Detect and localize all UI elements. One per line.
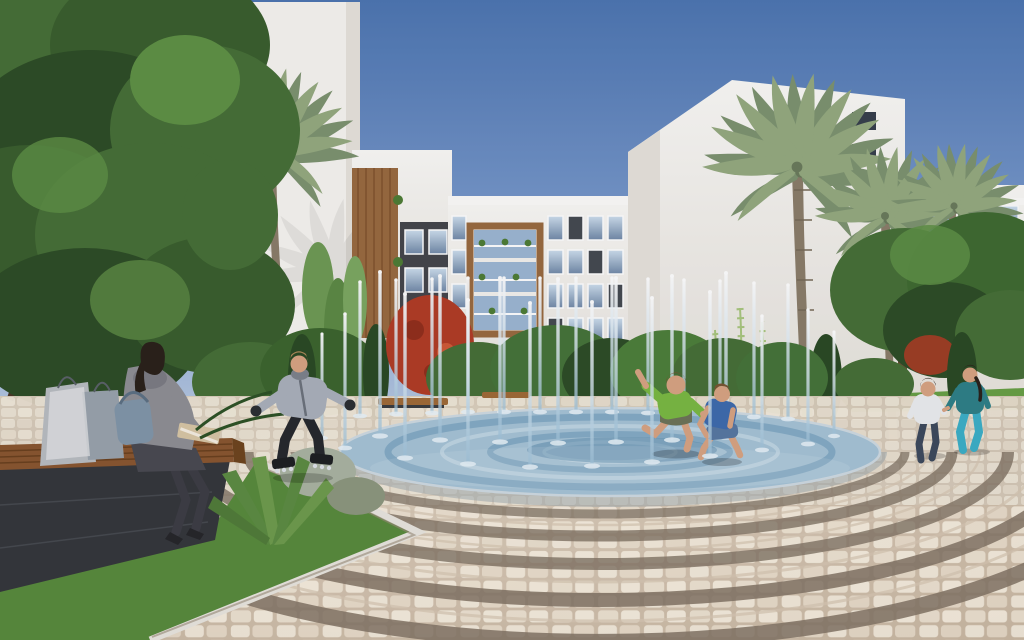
vignette [0,0,1024,640]
architectural-rendering [0,0,1024,640]
scene-canvas [0,0,1024,640]
